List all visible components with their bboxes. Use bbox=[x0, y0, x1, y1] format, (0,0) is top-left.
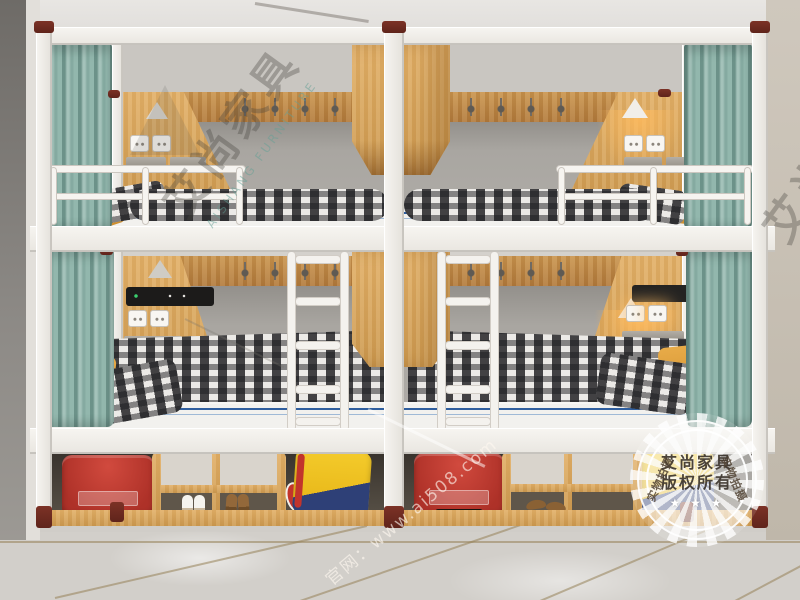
ladder-rung bbox=[295, 255, 341, 264]
cubby-compartment bbox=[511, 452, 564, 484]
guardrail-stanchion bbox=[236, 167, 243, 225]
photo-stage: 艾尚家具 AISHANG FURNITURE 艾尚家具 AISHANG FURN… bbox=[0, 0, 800, 600]
center-post bbox=[384, 27, 404, 519]
ladder-left bbox=[287, 251, 349, 431]
duffel-bag-yellow bbox=[292, 447, 372, 518]
guardrail-stanchion bbox=[558, 167, 565, 225]
suitcase-label bbox=[429, 490, 489, 505]
ladder-rung bbox=[295, 417, 341, 426]
curtain-lower-right bbox=[686, 249, 752, 427]
power-outlet-lit bbox=[626, 305, 645, 322]
power-outlet bbox=[624, 135, 643, 152]
corner-post-left bbox=[36, 27, 52, 519]
cubby-side-panel bbox=[152, 452, 161, 516]
curtain-rod-bracket bbox=[108, 90, 120, 98]
charging-panel bbox=[126, 287, 214, 306]
guardrail-stanchion bbox=[744, 167, 751, 225]
ladder-rung bbox=[445, 255, 491, 264]
curtain-rod-bracket bbox=[658, 89, 671, 97]
shoe-cubby-right bbox=[502, 452, 642, 516]
ladder-rung bbox=[445, 385, 491, 394]
ladder-rail bbox=[437, 251, 446, 431]
ladder-rail bbox=[287, 251, 296, 431]
suitcase-red bbox=[414, 453, 504, 518]
shoe-cubby-left bbox=[152, 452, 286, 516]
right-wall bbox=[766, 0, 800, 540]
ladder-rung bbox=[445, 417, 491, 426]
ladder-rung bbox=[445, 341, 491, 350]
power-outlet-lit bbox=[648, 305, 667, 322]
copyright-badge: 艾尚家具 版权所有 ★ ★ ★ 实物拍摄 实物拍摄 bbox=[630, 413, 764, 547]
post-cap bbox=[34, 21, 54, 33]
ladder-rung bbox=[445, 297, 491, 306]
curtain-lower-left bbox=[42, 249, 114, 427]
post-cap bbox=[382, 21, 406, 33]
guardrail-upper-right bbox=[556, 165, 754, 227]
guardrail-stanchion bbox=[142, 167, 149, 225]
ladder-rail bbox=[490, 251, 499, 431]
cubby-compartment bbox=[220, 452, 277, 485]
guardrail-stanchion bbox=[650, 167, 657, 225]
suitcase-red bbox=[62, 455, 154, 518]
coat-hooks bbox=[428, 98, 578, 116]
cubby-compartment bbox=[572, 452, 633, 484]
power-outlet bbox=[150, 310, 169, 327]
post-foot bbox=[36, 506, 52, 528]
post-cap bbox=[750, 21, 770, 33]
cubby-divider bbox=[212, 452, 220, 516]
cubby-compartment bbox=[161, 452, 212, 485]
guardrail-upper-left bbox=[48, 165, 246, 227]
ladder-right bbox=[437, 251, 499, 431]
cubby-side-panel bbox=[502, 452, 511, 516]
post-foot bbox=[110, 502, 124, 522]
power-outlet bbox=[128, 310, 147, 327]
cubby-shelf bbox=[161, 485, 277, 493]
ladder-rung bbox=[295, 385, 341, 394]
ladder-rung bbox=[295, 297, 341, 306]
suitcase-label bbox=[78, 491, 138, 506]
cubby-shelf bbox=[511, 484, 633, 492]
ladder-rail bbox=[340, 251, 349, 431]
badge-stars: ★ ★ ★ bbox=[670, 496, 725, 510]
left-wall-shadow bbox=[0, 0, 26, 540]
ladder-rung bbox=[295, 341, 341, 350]
badge-subtitle: 版权所有 bbox=[661, 473, 733, 493]
power-outlet bbox=[646, 135, 665, 152]
cubby-side-panel bbox=[277, 452, 286, 516]
post-foot bbox=[384, 506, 404, 528]
